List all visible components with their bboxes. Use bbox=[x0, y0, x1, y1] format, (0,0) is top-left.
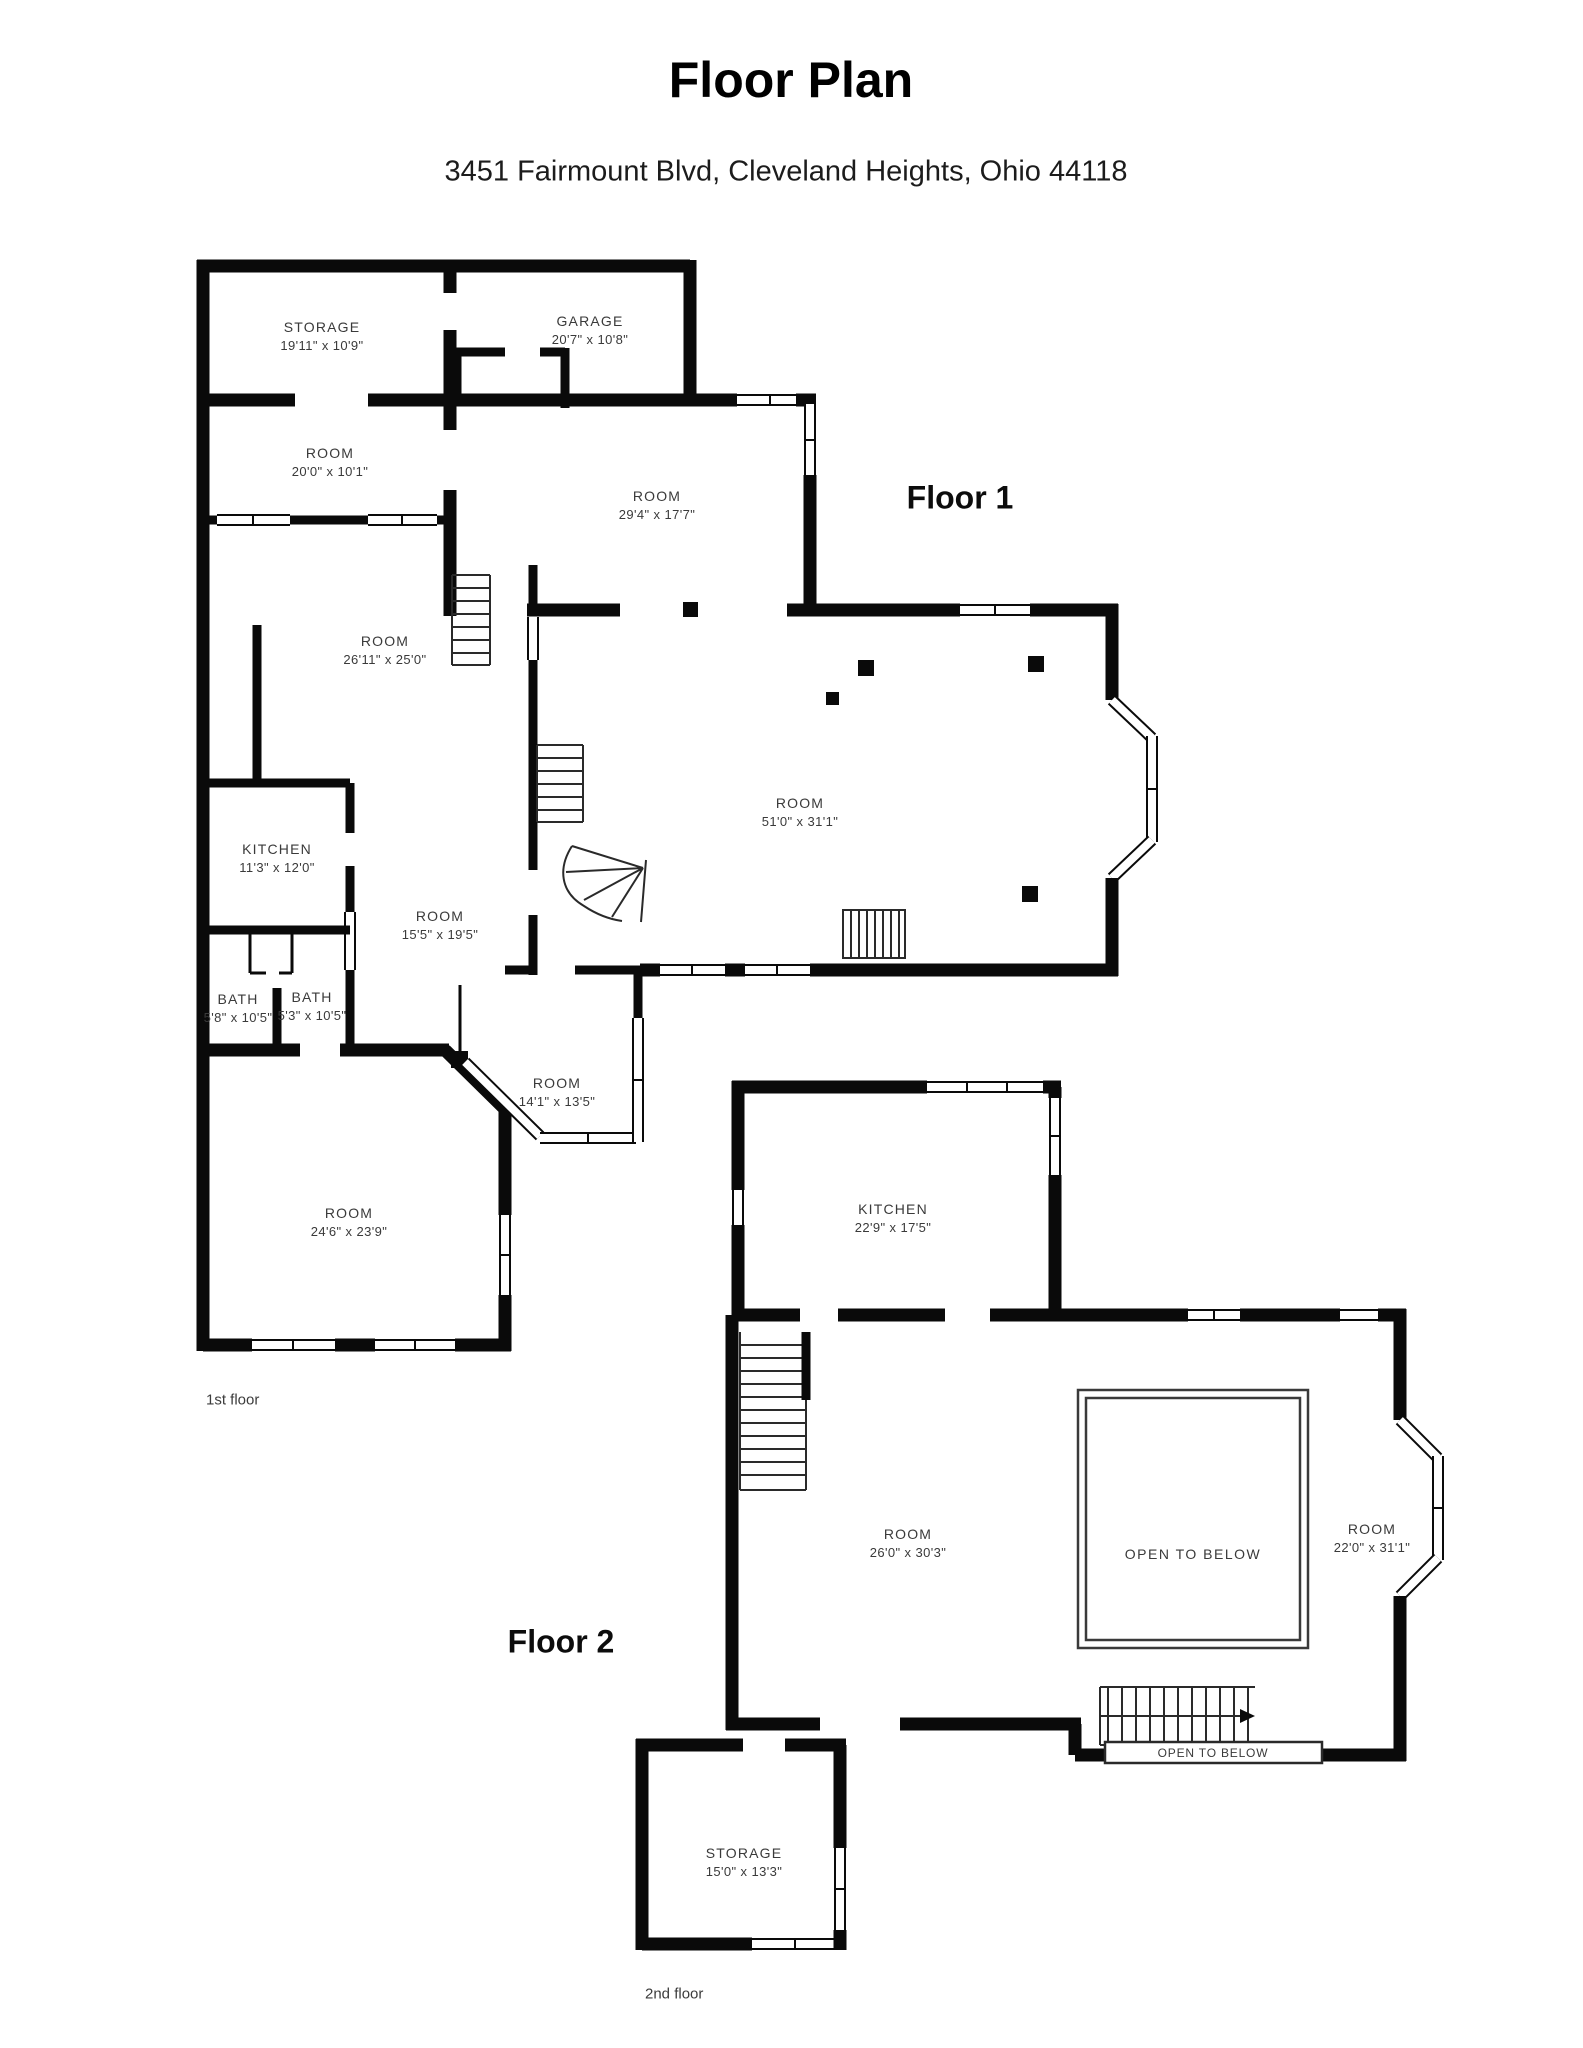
room-label-room-29x17: ROOM 29'4" x 17'7" bbox=[619, 488, 696, 522]
room-label-kitchen-f1: KITCHEN 11'3" x 12'0" bbox=[239, 841, 315, 875]
floor1-plan bbox=[197, 260, 1158, 1351]
floor1-stairs-lower bbox=[843, 910, 905, 958]
page-address: 3451 Fairmount Blvd, Cleveland Heights, … bbox=[445, 156, 1128, 189]
page-title: Floor Plan bbox=[669, 51, 913, 109]
room-label-garage: GARAGE 20'7" x 10'8" bbox=[552, 313, 629, 347]
floor2-heading: Floor 2 bbox=[508, 1624, 615, 1661]
room-label-bath-right: BATH 5'3" x 10'5" bbox=[278, 989, 347, 1023]
floor2-caption: 2nd floor bbox=[645, 1986, 703, 2003]
room-label-room-26x30: ROOM 26'0" x 30'3" bbox=[870, 1526, 947, 1560]
open-to-below-label: OPEN TO BELOW bbox=[1125, 1546, 1261, 1562]
room-label-room-22x31: ROOM 22'0" x 31'1" bbox=[1334, 1521, 1411, 1555]
room-label-room-24x23: ROOM 24'6" x 23'9" bbox=[311, 1205, 388, 1239]
floor2-stairs-left bbox=[740, 1332, 806, 1490]
floor2-plan bbox=[636, 1081, 1444, 1950]
floor2-stairs-center bbox=[1100, 1687, 1255, 1745]
floor1-stairs-mid bbox=[537, 745, 583, 822]
room-label-storage-f1: STORAGE 19'11" x 10'9" bbox=[280, 319, 363, 353]
room-label-room-20x10: ROOM 20'0" x 10'1" bbox=[292, 445, 369, 479]
floor1-stairs-winder bbox=[563, 846, 646, 922]
open-to-below-strip-label: OPEN TO BELOW bbox=[1158, 1746, 1269, 1760]
room-label-room-15x19: ROOM 15'5" x 19'5" bbox=[402, 908, 479, 942]
room-label-kitchen-f2: KITCHEN 22'9" x 17'5" bbox=[855, 1201, 932, 1235]
room-label-bath-left: BATH 5'8" x 10'5" bbox=[204, 991, 273, 1025]
room-label-room-51x31: ROOM 51'0" x 31'1" bbox=[762, 795, 839, 829]
floor1-caption: 1st floor bbox=[206, 1392, 259, 1409]
floor1-stairs-upper bbox=[452, 575, 490, 665]
floor1-heading: Floor 1 bbox=[907, 480, 1014, 517]
room-label-room-14x13: ROOM 14'1" x 13'5" bbox=[519, 1075, 596, 1109]
floor-plan-page: Floor Plan 3451 Fairmount Blvd, Clevelan… bbox=[0, 0, 1583, 2048]
room-label-room-26x25: ROOM 26'11" x 25'0" bbox=[343, 633, 426, 667]
room-label-storage-f2: STORAGE 15'0" x 13'3" bbox=[706, 1845, 783, 1879]
